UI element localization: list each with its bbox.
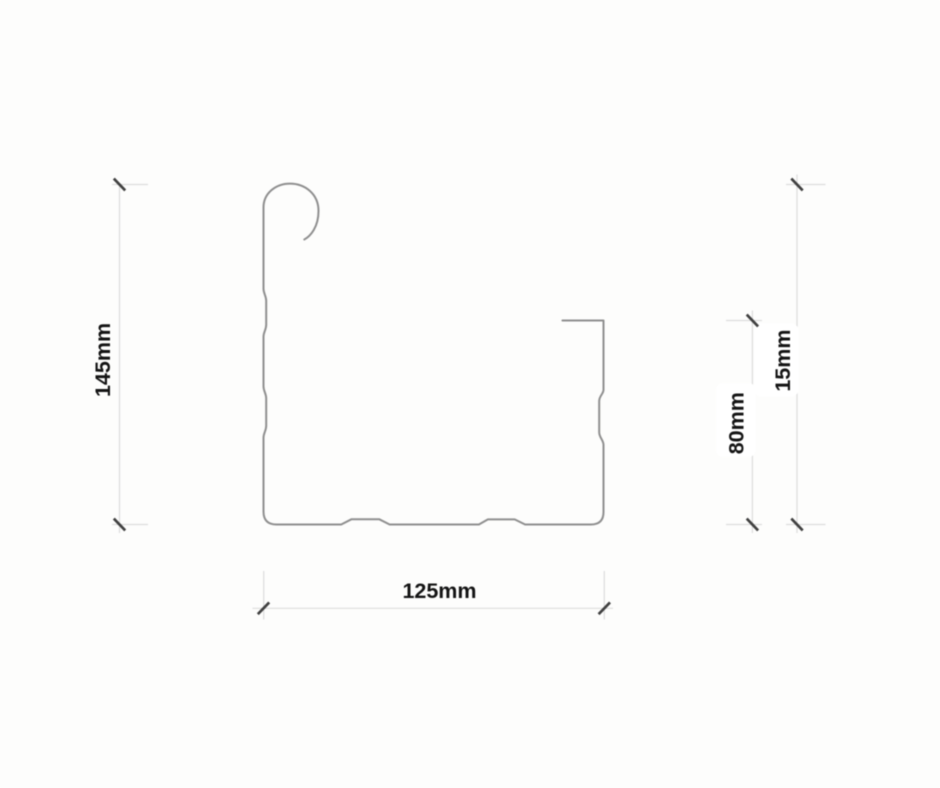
svg-text:145mm: 145mm bbox=[91, 323, 115, 397]
svg-text:125mm: 125mm bbox=[402, 579, 476, 603]
svg-text:15mm: 15mm bbox=[771, 330, 795, 392]
svg-text:80mm: 80mm bbox=[725, 392, 749, 454]
